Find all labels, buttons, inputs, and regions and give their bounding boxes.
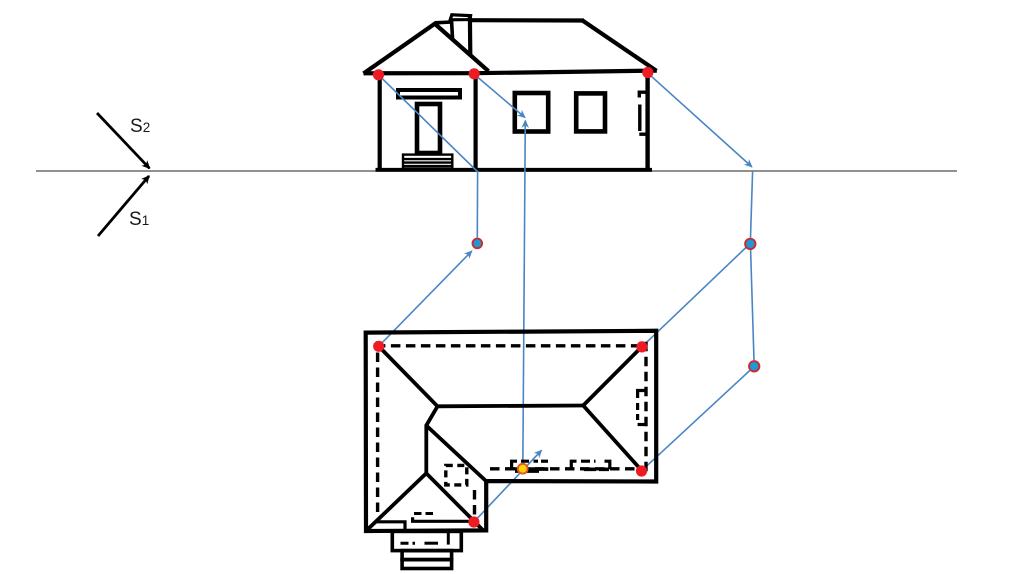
svg-text:S2: S2 — [130, 116, 150, 137]
svg-text:S1: S1 — [129, 209, 149, 230]
